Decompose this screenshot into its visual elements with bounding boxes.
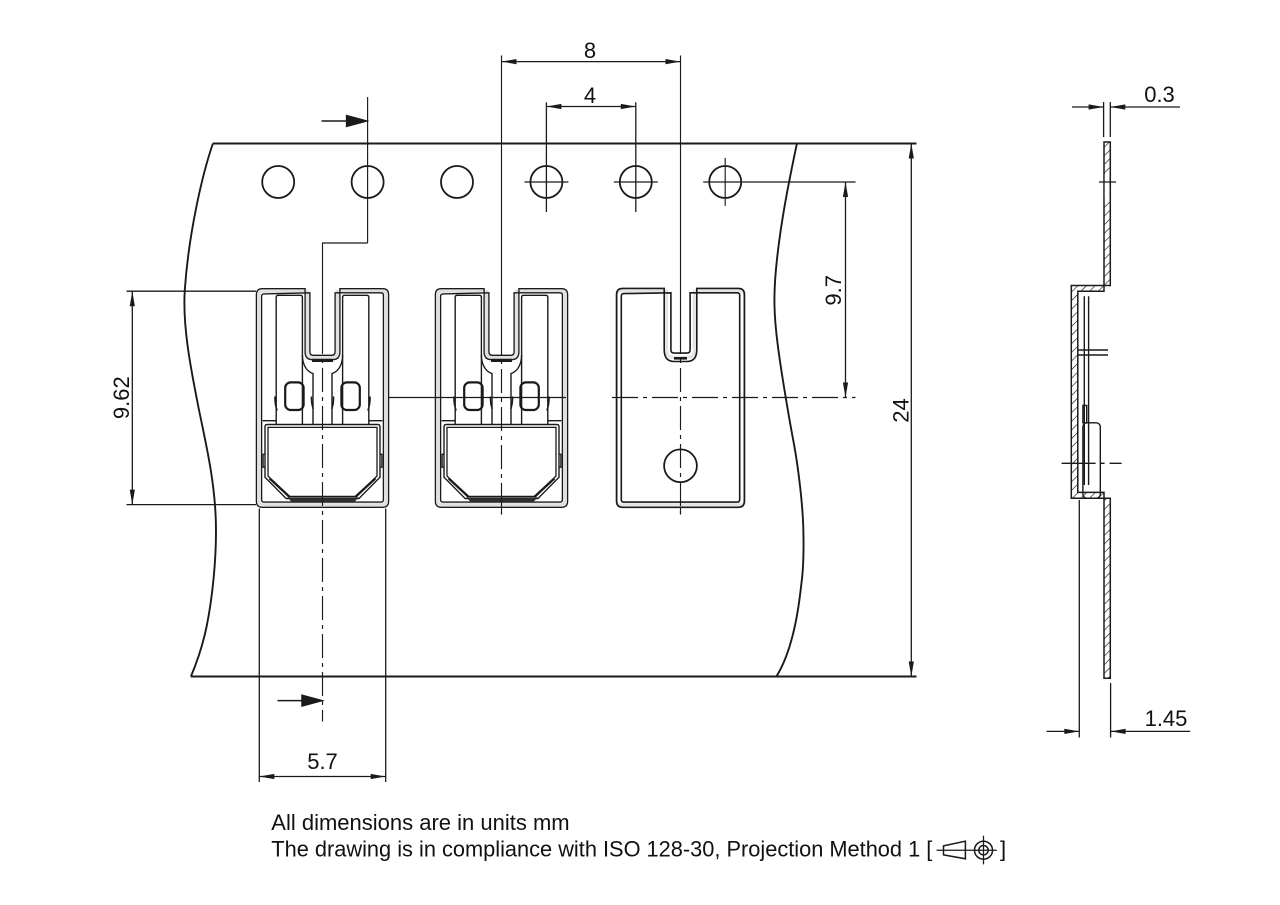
svg-text:9.62: 9.62 [109, 376, 134, 419]
svg-text:All dimensions are in units mm: All dimensions are in units mm [271, 810, 569, 835]
svg-text:5.7: 5.7 [307, 749, 338, 774]
svg-text:The drawing is in compliance w: The drawing is in compliance with ISO 12… [271, 836, 932, 861]
svg-text:4: 4 [584, 83, 596, 108]
svg-text:]: ] [1000, 836, 1006, 861]
svg-text:9.7: 9.7 [821, 275, 846, 306]
svg-text:0.3: 0.3 [1144, 82, 1175, 107]
svg-text:1.45: 1.45 [1145, 706, 1188, 731]
svg-text:24: 24 [889, 398, 914, 422]
svg-text:8: 8 [584, 38, 596, 63]
